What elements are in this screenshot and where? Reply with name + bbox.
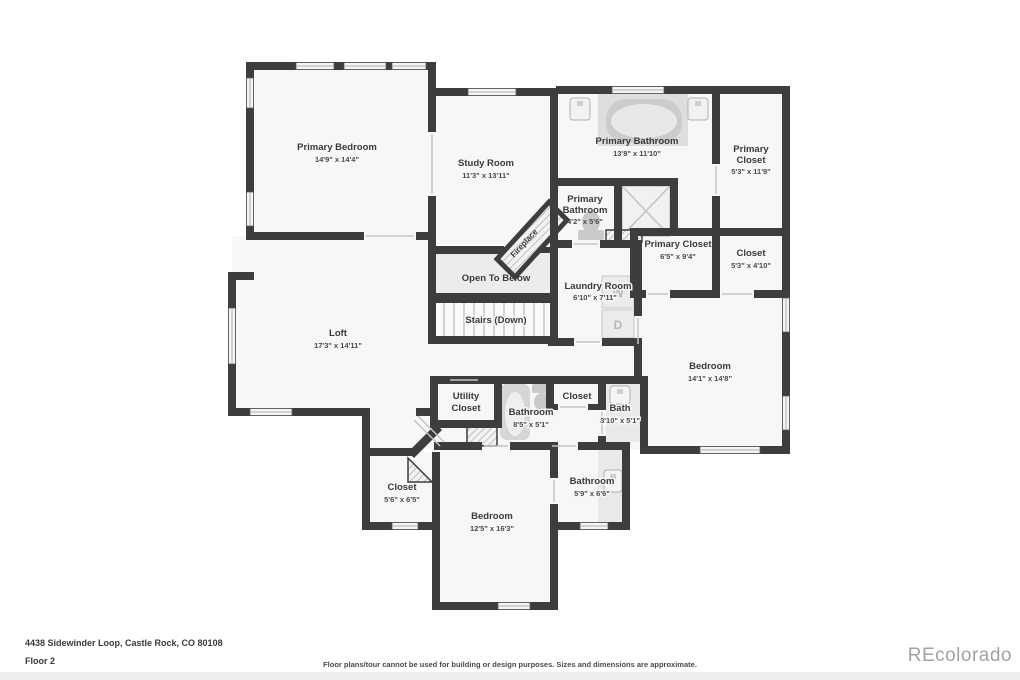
bathroom-mid-label: Bathroom (509, 407, 554, 418)
bedroom-right-dims: 14'1" x 14'8" (688, 374, 732, 383)
sink-icon (688, 98, 708, 120)
window-icon (344, 63, 386, 70)
window-icon (392, 63, 426, 70)
floorplan-svg: W D (0, 0, 1020, 680)
sink-icon (610, 386, 630, 404)
window-icon (229, 308, 236, 364)
loft-label: Loft (329, 328, 348, 339)
sink-icon (570, 98, 590, 120)
utility-closet-label2: Closet (451, 403, 481, 414)
bathroom-lower-label: Bathroom (570, 476, 615, 487)
window-icon (247, 78, 254, 108)
bathroom-mid-dims: 8'5" x 5'1" (513, 420, 549, 429)
closet-mid-right-dims: 5'3" x 4'10" (731, 261, 771, 270)
window-icon (783, 298, 790, 332)
disclaimer-text: Floor plans/tour cannot be used for buil… (0, 660, 1020, 669)
property-address: 4438 Sidewinder Loop, Castle Rock, CO 80… (25, 638, 223, 648)
closet-hall-label: Closet (562, 391, 592, 402)
primary-closet-upper-label1: Primary (733, 144, 769, 155)
window-icon (468, 89, 516, 96)
primary-bedroom-dims: 14'9" x 14'4" (315, 155, 359, 164)
study-room-dims: 11'3" x 13'11" (462, 171, 510, 180)
primary-closet-mid-label: Primary Closet (644, 239, 712, 250)
window-icon (296, 63, 334, 70)
primary-bathroom-small-dims: 4'2" x 5'6" (567, 217, 603, 226)
primary-bathroom-label: Primary Bathroom (596, 136, 679, 147)
stairs-label: Stairs (Down) (465, 315, 526, 326)
bath-dims: 3'10" x 5'1" (600, 416, 640, 425)
primary-bedroom-label: Primary Bedroom (297, 142, 377, 153)
bedroom-right-label: Bedroom (689, 361, 731, 372)
laundry-dims: 6'10" x 7'11" (573, 293, 617, 302)
recolorado-watermark: REcolorado (908, 645, 1012, 667)
window-icon (247, 192, 254, 226)
primary-bathroom-small-label1: Primary (567, 194, 603, 205)
primary-closet-upper-dims: 5'3" x 11'9" (731, 167, 771, 176)
bathroom-lower-dims: 5'9" x 6'6" (574, 489, 610, 498)
closet-lower-dims: 5'6" x 6'5" (384, 495, 420, 504)
window-icon (783, 396, 790, 430)
bath-label: Bath (609, 403, 630, 414)
bedroom-lower-dims: 12'5" x 16'3" (470, 524, 514, 533)
dryer-letter: D (614, 318, 623, 332)
utility-closet-label1: Utility (453, 391, 480, 402)
closet-mid-right-label: Closet (736, 248, 766, 259)
primary-bathroom-dims: 13'8" x 11'10" (613, 149, 661, 158)
primary-closet-mid-dims: 6'5" x 9'4" (660, 252, 696, 261)
loft-dims: 17'3" x 14'11" (314, 341, 362, 350)
window-icon (612, 87, 664, 94)
bottom-strip (0, 672, 1020, 680)
window-icon (392, 523, 418, 530)
primary-bathroom-small-label2: Bathroom (563, 205, 608, 216)
primary-closet-upper-label2: Closet (736, 155, 766, 166)
floorplan-page: W D (0, 0, 1020, 680)
laundry-label: Laundry Room (564, 281, 631, 292)
window-icon (580, 523, 608, 530)
study-room-label: Study Room (458, 158, 514, 169)
window-icon (250, 409, 292, 416)
window-icon (498, 603, 530, 610)
bedroom-lower-label: Bedroom (471, 511, 513, 522)
window-icon (700, 447, 760, 454)
closet-lower-label: Closet (387, 482, 417, 493)
stairwell (433, 250, 553, 340)
open-to-below-label: Open To Below (462, 273, 531, 284)
